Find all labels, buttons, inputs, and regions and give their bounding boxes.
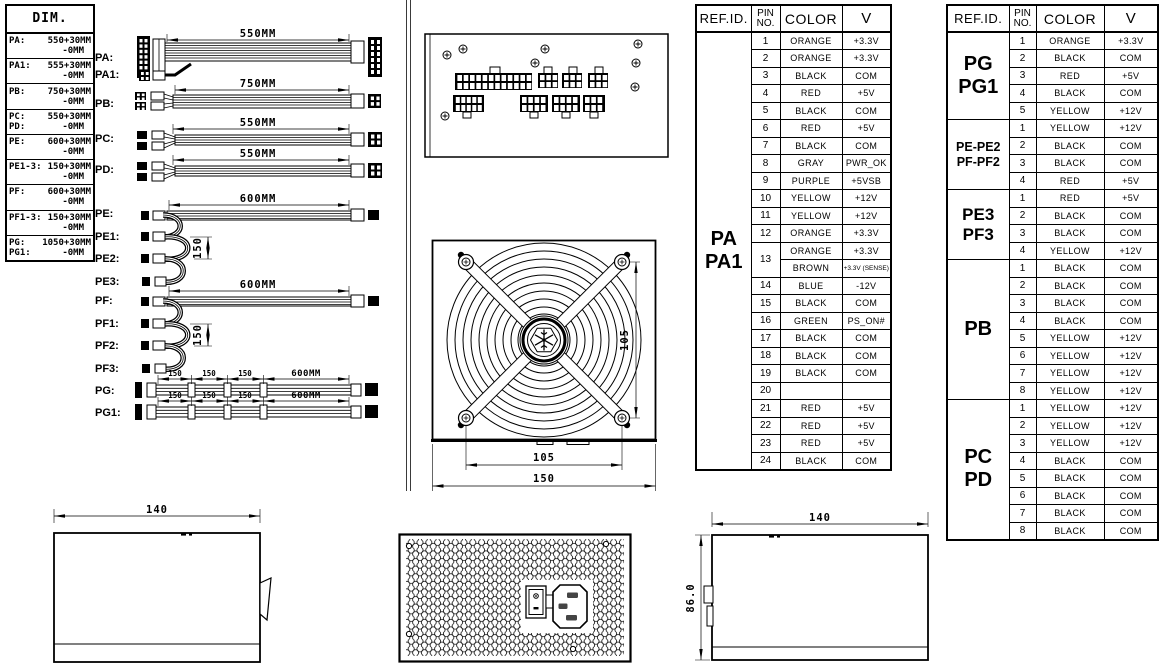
wire-color: BLACK (1036, 225, 1104, 243)
dim-label: 550MM (240, 117, 277, 129)
pin-no: 8 (751, 155, 780, 173)
pin-no: 4 (1009, 85, 1036, 103)
voltage: +5V (842, 400, 891, 418)
wire-color: ORANGE (780, 225, 842, 243)
dim-label: 750MM (240, 78, 277, 90)
wire-color: YELLOW (1036, 365, 1104, 383)
pin-no: 1 (1009, 32, 1036, 50)
header-ref-id: REF.ID. (696, 5, 751, 32)
pin-no: 2 (1009, 50, 1036, 68)
wire-color: YELLOW (1036, 382, 1104, 400)
voltage: COM (1104, 505, 1158, 523)
cable-label: PF3: (95, 363, 119, 375)
wire-color: BLACK (1036, 277, 1104, 295)
pin-no: 5 (751, 102, 780, 120)
voltage: +5V (842, 120, 891, 138)
screw-icon (443, 51, 451, 59)
wire-color: RED (780, 400, 842, 418)
wire-color: BLACK (780, 295, 842, 313)
dim-label: 105 (533, 452, 555, 464)
voltage: +12V (1104, 382, 1158, 400)
cable-label: PA: (95, 52, 113, 64)
wire-color: RED (780, 435, 842, 453)
dim-label: 150 (168, 369, 182, 378)
voltage: +12V (1104, 417, 1158, 435)
wire-color: BLACK (780, 347, 842, 365)
screw-icon (441, 112, 449, 120)
pin-no: 8 (1009, 382, 1036, 400)
fan-screw-icon (459, 411, 474, 426)
cable-label: PF1: (95, 318, 119, 330)
pa-pinout-table: REF.ID. PIN NO. COLOR V PA PA11ORANGE+3.… (695, 4, 892, 471)
ref-id-cell: PA PA1 (696, 32, 751, 470)
voltage: +3.3V (842, 242, 891, 260)
pin-no: 2 (1009, 207, 1036, 225)
dim-label: 140 (809, 512, 831, 524)
voltage: +12V (1104, 120, 1158, 138)
pin-no: 9 (751, 172, 780, 190)
pin-no: 16 (751, 312, 780, 330)
dim-label: 600MM (240, 193, 277, 205)
dim-label: 150 (202, 391, 216, 400)
voltage: COM (842, 330, 891, 348)
wire-color: YELLOW (1036, 120, 1104, 138)
wire-color: YELLOW (1036, 400, 1104, 418)
cable-label: PB: (95, 98, 114, 110)
pin-no: 6 (1009, 347, 1036, 365)
cable-row-pa: PA: 550MM (95, 28, 382, 79)
voltage: COM (842, 365, 891, 383)
pin-row: PB1BLACKCOM (947, 260, 1158, 278)
dim-row: PF1-3:150+30MM-0MM (7, 210, 93, 235)
pin-no: 7 (1009, 365, 1036, 383)
pin-no: 14 (751, 277, 780, 295)
voltage: -12V (842, 277, 891, 295)
pin-no: 6 (751, 120, 780, 138)
dim-table-title: DIM. (7, 6, 93, 34)
dim-label: 150 (192, 324, 204, 346)
pin-no: 1 (1009, 190, 1036, 208)
pin-no: 6 (1009, 487, 1036, 505)
pin-no: 18 (751, 347, 780, 365)
pin-no: 23 (751, 435, 780, 453)
pin-no: 5 (1009, 330, 1036, 348)
pin-no: 4 (1009, 242, 1036, 260)
fan-screw-icon (459, 255, 474, 270)
wire-color: BLACK (780, 102, 842, 120)
ref-id-cell: PB (947, 260, 1009, 400)
wire-color: BLACK (1036, 155, 1104, 173)
pin-no: 2 (751, 50, 780, 68)
pin-no: 3 (1009, 225, 1036, 243)
voltage: +12V (1104, 102, 1158, 120)
wire-color: RED (780, 417, 842, 435)
pin-no: 4 (1009, 452, 1036, 470)
wire-color: YELLOW (1036, 102, 1104, 120)
dim-label: 600MM (291, 391, 321, 401)
voltage: COM (842, 67, 891, 85)
wire-color: BLACK (1036, 137, 1104, 155)
wire-color: BROWN (780, 260, 842, 278)
table-header-row: REF.ID. PIN NO. COLOR V (696, 5, 891, 32)
dim-row: PA:550+30MM-0MM (7, 34, 93, 58)
wire-color: ORANGE (780, 50, 842, 68)
table-header-row: REF.ID. PIN NO. COLOR V (947, 5, 1158, 32)
dim-label: 600MM (240, 279, 277, 291)
fan-screw-icon (615, 411, 630, 426)
voltage: COM (842, 347, 891, 365)
pin-no: 13 (751, 242, 780, 277)
cable-label: PD: (95, 164, 114, 176)
dim-label: 150 (533, 473, 555, 485)
cable-label: PG1: (95, 407, 121, 419)
pin-no: 5 (1009, 102, 1036, 120)
pin-no: 7 (1009, 505, 1036, 523)
psu-datasheet-drawing: DIM. PA:550+30MM-0MM PA1:555+30MM-0MM PB… (0, 0, 1159, 666)
pin-no: 1 (1009, 260, 1036, 278)
voltage: COM (1104, 295, 1158, 313)
pin-no: 3 (751, 67, 780, 85)
header-ref-id: REF.ID. (947, 5, 1009, 32)
wire-color: BLACK (1036, 312, 1104, 330)
voltage: +5V (1104, 190, 1158, 208)
wire-color: BLACK (1036, 505, 1104, 523)
cable-label: PE1: (95, 231, 119, 243)
dim-row: PC:550+30MMPD:-0MM (7, 109, 93, 134)
dim-label: 150 (168, 391, 182, 400)
cable-label: PF: (95, 295, 113, 307)
voltage: +12V (1104, 400, 1158, 418)
wire-color: RED (780, 120, 842, 138)
voltage: +3.3V (SENSE) (842, 260, 891, 278)
dim-row: PE:600+30MM-0MM (7, 134, 93, 159)
pin-no: 15 (751, 295, 780, 313)
cable-row-pd: PD: 550MM (95, 148, 382, 181)
side-tab (260, 578, 271, 620)
pin-no: 10 (751, 190, 780, 208)
voltage: +5V (1104, 67, 1158, 85)
voltage: COM (1104, 50, 1158, 68)
cable-group-pe: PE: 600MM PE1: PE2: PE3: 150 (95, 193, 379, 288)
pin-row: PE-PE2 PF-PF21YELLOW+12V (947, 120, 1158, 138)
voltage: +12V (842, 207, 891, 225)
side-view-right: 140 86.0 (685, 500, 937, 666)
connector-panel-view (424, 33, 669, 158)
cable-diagrams: PA: 550MM PA1: PB: (95, 28, 410, 430)
cable-label: PE3: (95, 276, 119, 288)
ref-id-cell: PC PD (947, 400, 1009, 540)
dim-row: PE1-3:150+30MM-0MM (7, 159, 93, 184)
voltage: PS_ON# (842, 312, 891, 330)
wire-color: YELLOW (1036, 435, 1104, 453)
screw-icon (631, 83, 639, 91)
side-tab (704, 586, 713, 603)
side-view-left: 140 (50, 503, 315, 664)
pin-no: 20 (751, 382, 780, 400)
wire-color: BLACK (1036, 470, 1104, 488)
pin-no: 3 (1009, 67, 1036, 85)
ac-inlet (553, 585, 587, 628)
wire-color: BLACK (1036, 207, 1104, 225)
wire-color: YELLOW (1036, 417, 1104, 435)
voltage: +3.3V (842, 50, 891, 68)
dim-label: 86.0 (685, 583, 697, 612)
voltage: +3.3V (1104, 32, 1158, 50)
voltage: COM (1104, 85, 1158, 103)
power-switch (526, 586, 546, 618)
pin-no: 4 (1009, 172, 1036, 190)
wire-color: YELLOW (1036, 347, 1104, 365)
cable-row-pg: PG: 150 150 150 600MM (95, 369, 378, 398)
screw-icon (541, 45, 549, 53)
cable-label: PE2: (95, 253, 119, 265)
wire-color (780, 382, 842, 400)
cable-label: PG: (95, 385, 115, 397)
voltage: +12V (1104, 347, 1158, 365)
voltage: COM (1104, 452, 1158, 470)
cable-row-pc: PC: 550MM (95, 117, 382, 150)
voltage: PWR_OK (842, 155, 891, 173)
voltage: COM (842, 295, 891, 313)
pin-no: 2 (1009, 417, 1036, 435)
pin-no: 7 (751, 137, 780, 155)
wire-color: YELLOW (780, 207, 842, 225)
cable-label: PC: (95, 133, 114, 145)
dim-label: 550MM (240, 148, 277, 160)
pin-no: 12 (751, 225, 780, 243)
voltage: +12V (1104, 242, 1158, 260)
pin-no: 5 (1009, 470, 1036, 488)
wire-color: RED (780, 85, 842, 103)
header-pin-no: PIN NO. (751, 5, 780, 32)
cable-label: PF2: (95, 340, 119, 352)
dim-label: 105 (619, 329, 631, 351)
dim-table-body: PA:550+30MM-0MM PA1:555+30MM-0MM PB:750+… (7, 34, 93, 260)
pin-row: PC PD1YELLOW+12V (947, 400, 1158, 418)
pin-no: 1 (1009, 120, 1036, 138)
pin-no: 4 (1009, 312, 1036, 330)
pin-no: 19 (751, 365, 780, 383)
ref-id-cell: PE3 PF3 (947, 190, 1009, 260)
wire-color: ORANGE (780, 32, 842, 50)
dim-label: 600MM (291, 369, 321, 379)
ref-id-cell: PG PG1 (947, 32, 1009, 120)
dim-label: 140 (146, 504, 168, 516)
voltage: COM (1104, 470, 1158, 488)
wire-color: BLACK (780, 452, 842, 470)
voltage: COM (1104, 487, 1158, 505)
side-tab (707, 606, 713, 626)
dim-table: DIM. PA:550+30MM-0MM PA1:555+30MM-0MM PB… (5, 4, 95, 262)
wire-color: BLACK (1036, 295, 1104, 313)
voltage: +5V (842, 435, 891, 453)
voltage: COM (1104, 312, 1158, 330)
pin-no: 1 (1009, 400, 1036, 418)
dim-row: PA1:555+30MM-0MM (7, 58, 93, 83)
wire-color: BLACK (780, 330, 842, 348)
wire-color: GRAY (780, 155, 842, 173)
voltage: +3.3V (842, 225, 891, 243)
dim-label: 150 (202, 369, 216, 378)
voltage: COM (842, 137, 891, 155)
wire-color: BLACK (1036, 260, 1104, 278)
cable-row-pb: PB: 750MM (95, 78, 381, 110)
voltage: COM (1104, 155, 1158, 173)
wire-color: BLACK (1036, 50, 1104, 68)
wire-color: BLACK (1036, 522, 1104, 540)
dim-label: 550MM (240, 28, 277, 40)
wire-color: BLUE (780, 277, 842, 295)
section-divider (406, 0, 411, 491)
pin-no: 22 (751, 417, 780, 435)
header-color: COLOR (1036, 5, 1104, 32)
ref-id-cell: PE-PE2 PF-PF2 (947, 120, 1009, 190)
wire-color: YELLOW (1036, 242, 1104, 260)
wire-color: ORANGE (1036, 32, 1104, 50)
pin-row: PE3 PF31RED+5V (947, 190, 1158, 208)
voltage: +12V (1104, 435, 1158, 453)
voltage: +3.3V (842, 32, 891, 50)
wire-color: PURPLE (780, 172, 842, 190)
voltage: +5VSB (842, 172, 891, 190)
pin-row: PA PA11ORANGE+3.3V (696, 32, 891, 50)
pin-no: 21 (751, 400, 780, 418)
wire-color: BLACK (780, 365, 842, 383)
cable-label: PA1: (95, 69, 119, 81)
voltage: +12V (842, 190, 891, 208)
pin-no: 1 (751, 32, 780, 50)
wire-color: BLACK (1036, 85, 1104, 103)
cable-group-pf: PF: 600MM PF1: PF2: PF3: 150 (95, 279, 379, 375)
header-color: COLOR (780, 5, 842, 32)
voltage: COM (1104, 207, 1158, 225)
pin-no: 24 (751, 452, 780, 470)
wire-color: BLACK (780, 67, 842, 85)
wire-color: BLACK (780, 137, 842, 155)
wire-color: YELLOW (780, 190, 842, 208)
cable-label: PE: (95, 208, 113, 220)
rear-panel-view (398, 533, 632, 664)
voltage: COM (1104, 522, 1158, 540)
dim-label: 150 (238, 369, 252, 378)
header-pin-no: PIN NO. (1009, 5, 1036, 32)
screw-icon (459, 45, 467, 53)
voltage: COM (1104, 260, 1158, 278)
wire-color: ORANGE (780, 242, 842, 260)
wire-color: RED (1036, 172, 1104, 190)
voltage: COM (1104, 137, 1158, 155)
fan-hub (520, 316, 568, 364)
dim-label: 150 (238, 391, 252, 400)
dim-row: PF:600+30MM-0MM (7, 184, 93, 209)
wire-color: BLACK (1036, 487, 1104, 505)
voltage: +12V (1104, 330, 1158, 348)
pin-no: 3 (1009, 435, 1036, 453)
pin-no: 17 (751, 330, 780, 348)
voltage: COM (1104, 225, 1158, 243)
voltage: +5V (842, 85, 891, 103)
pin-row: PG PG11ORANGE+3.3V (947, 32, 1158, 50)
voltage: +12V (1104, 365, 1158, 383)
voltage: +5V (842, 417, 891, 435)
voltage: COM (842, 452, 891, 470)
wire-color: RED (1036, 67, 1104, 85)
wire-color: GREEN (780, 312, 842, 330)
voltage: +5V (1104, 172, 1158, 190)
wire-color: RED (1036, 190, 1104, 208)
pin-no: 2 (1009, 137, 1036, 155)
voltage (842, 382, 891, 400)
pin-no: 2 (1009, 277, 1036, 295)
dim-row: PB:750+30MM-0MM (7, 83, 93, 108)
pin-no: 3 (1009, 155, 1036, 173)
dim-label: 150 (192, 237, 204, 259)
dim-row: PG:1050+30MMPG1:-0MM (7, 235, 93, 260)
pin-no: 3 (1009, 295, 1036, 313)
header-voltage: V (1104, 5, 1158, 32)
screw-icon (632, 59, 640, 67)
peripheral-pinout-table: REF.ID. PIN NO. COLOR V PG PG11ORANGE+3.… (946, 4, 1159, 541)
header-voltage: V (842, 5, 891, 32)
pin-no: 11 (751, 207, 780, 225)
fan-screw-icon (615, 255, 630, 270)
wire-color: BLACK (1036, 452, 1104, 470)
screw-icon (634, 40, 642, 48)
voltage: COM (842, 102, 891, 120)
screw-icon (531, 59, 539, 67)
pin-no: 4 (751, 85, 780, 103)
fan-view: 105 105 150 (424, 228, 680, 494)
voltage: COM (1104, 277, 1158, 295)
wire-color: YELLOW (1036, 330, 1104, 348)
pin-no: 8 (1009, 522, 1036, 540)
